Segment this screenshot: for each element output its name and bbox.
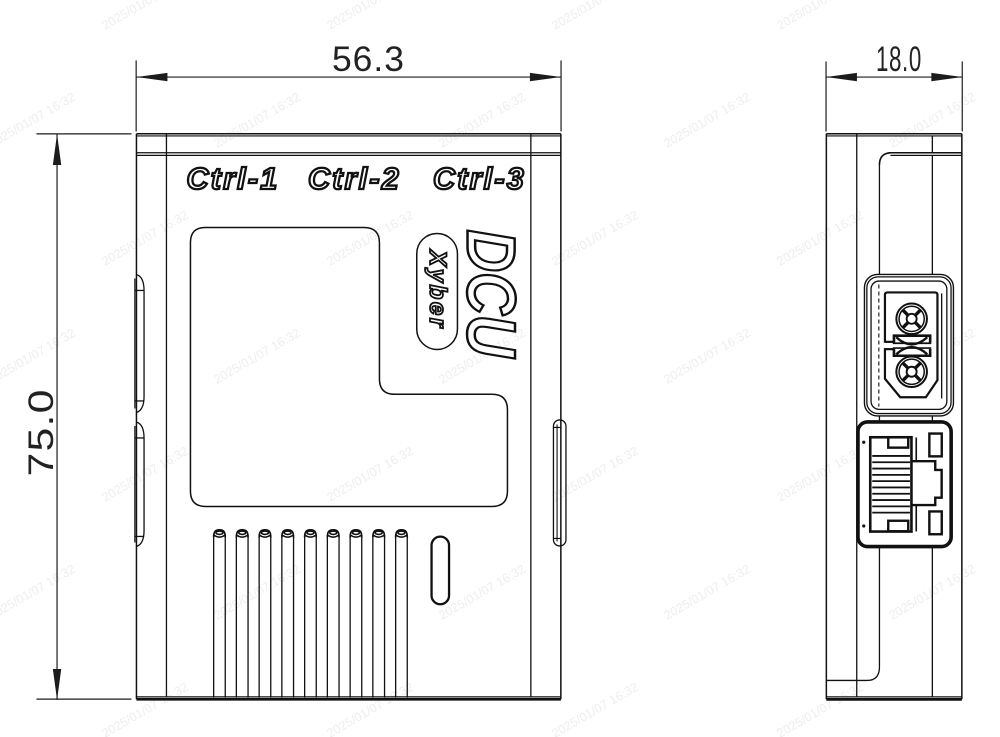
svg-text:75.0: 75.0 — [22, 388, 61, 476]
svg-text:Xyber: Xyber — [424, 248, 451, 330]
svg-text:DCU: DCU — [452, 229, 529, 359]
svg-text:Ctrl-1: Ctrl-1 — [187, 162, 280, 196]
svg-text:18.0: 18.0 — [876, 40, 922, 79]
svg-text:Ctrl-2: Ctrl-2 — [308, 162, 401, 196]
svg-text:56.3: 56.3 — [332, 40, 405, 79]
svg-text:Ctrl-3: Ctrl-3 — [433, 162, 526, 196]
